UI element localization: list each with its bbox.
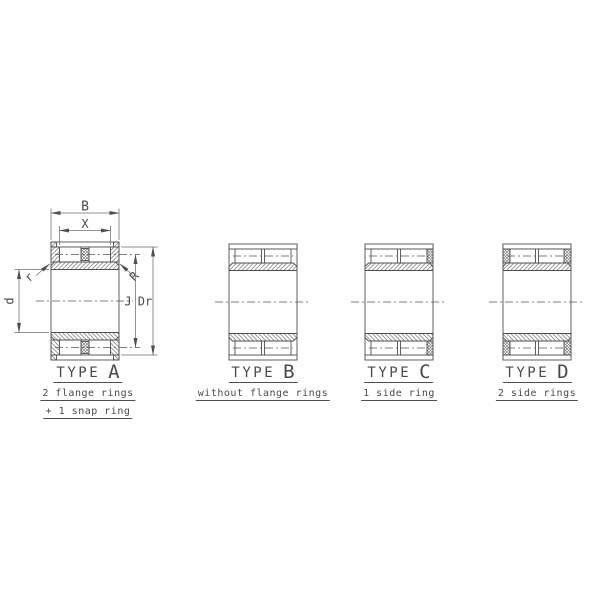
type-c-cross-section — [351, 244, 447, 360]
dim-label-r: r — [22, 270, 37, 285]
type-d-title: TYPED — [502, 365, 571, 383]
dim-label-d: d — [3, 297, 17, 304]
dim-label-R: R — [127, 268, 143, 284]
type-b-letter: B — [283, 361, 294, 383]
type-d-label-block: TYPED 2 side rings — [496, 362, 578, 401]
type-d-bottom-band — [503, 334, 571, 361]
dim-roller-span: X — [60, 217, 111, 245]
type-c-top-band — [365, 244, 433, 271]
dim-label-J: J — [124, 295, 131, 309]
type-a-letter: A — [108, 361, 119, 383]
type-d-letter: D — [557, 361, 568, 383]
dim-label-X: X — [81, 217, 89, 231]
type-a-caption-1: 2 flange rings — [40, 388, 135, 401]
dim-label-B: B — [81, 200, 89, 215]
leader-inner-chamfer: r — [22, 264, 50, 285]
drawing-canvas: B X d r R — [0, 0, 600, 600]
type-b-label-block: TYPEB without flange rings — [196, 362, 330, 401]
type-b-cross-section — [215, 244, 311, 360]
type-d-caption-1: 2 side rings — [496, 388, 578, 401]
type-a-top-band — [51, 242, 140, 270]
type-b-caption-1: without flange rings — [196, 388, 330, 401]
type-b-bottom-band — [229, 334, 297, 361]
leader-outer-chamfer: R — [120, 264, 142, 284]
type-b-title: TYPEB — [228, 365, 297, 383]
bearing-types-diagram: B X d r R — [0, 0, 600, 600]
type-d-top-band — [503, 244, 571, 271]
type-c-bottom-band — [365, 334, 433, 361]
type-a-cross-section: B X d r R — [3, 200, 158, 361]
dim-label-Dr: Dr — [138, 295, 152, 309]
type-c-caption-1: 1 side ring — [361, 388, 437, 401]
type-a-caption-2: + 1 snap ring — [44, 406, 133, 419]
type-b-top-band — [229, 244, 297, 271]
type-c-letter: C — [419, 361, 430, 383]
type-c-label-block: TYPEC 1 side ring — [361, 362, 437, 401]
type-c-title: TYPEC — [364, 365, 433, 383]
type-a-dimensions: B X d r R — [3, 200, 158, 356]
type-a-label-block: TYPEA 2 flange rings + 1 snap ring — [40, 362, 135, 419]
type-a-bottom-band — [51, 333, 140, 361]
dim-flange-diameter: J — [124, 255, 135, 348]
type-d-cross-section — [489, 244, 585, 360]
type-a-title: TYPEA — [53, 365, 122, 383]
